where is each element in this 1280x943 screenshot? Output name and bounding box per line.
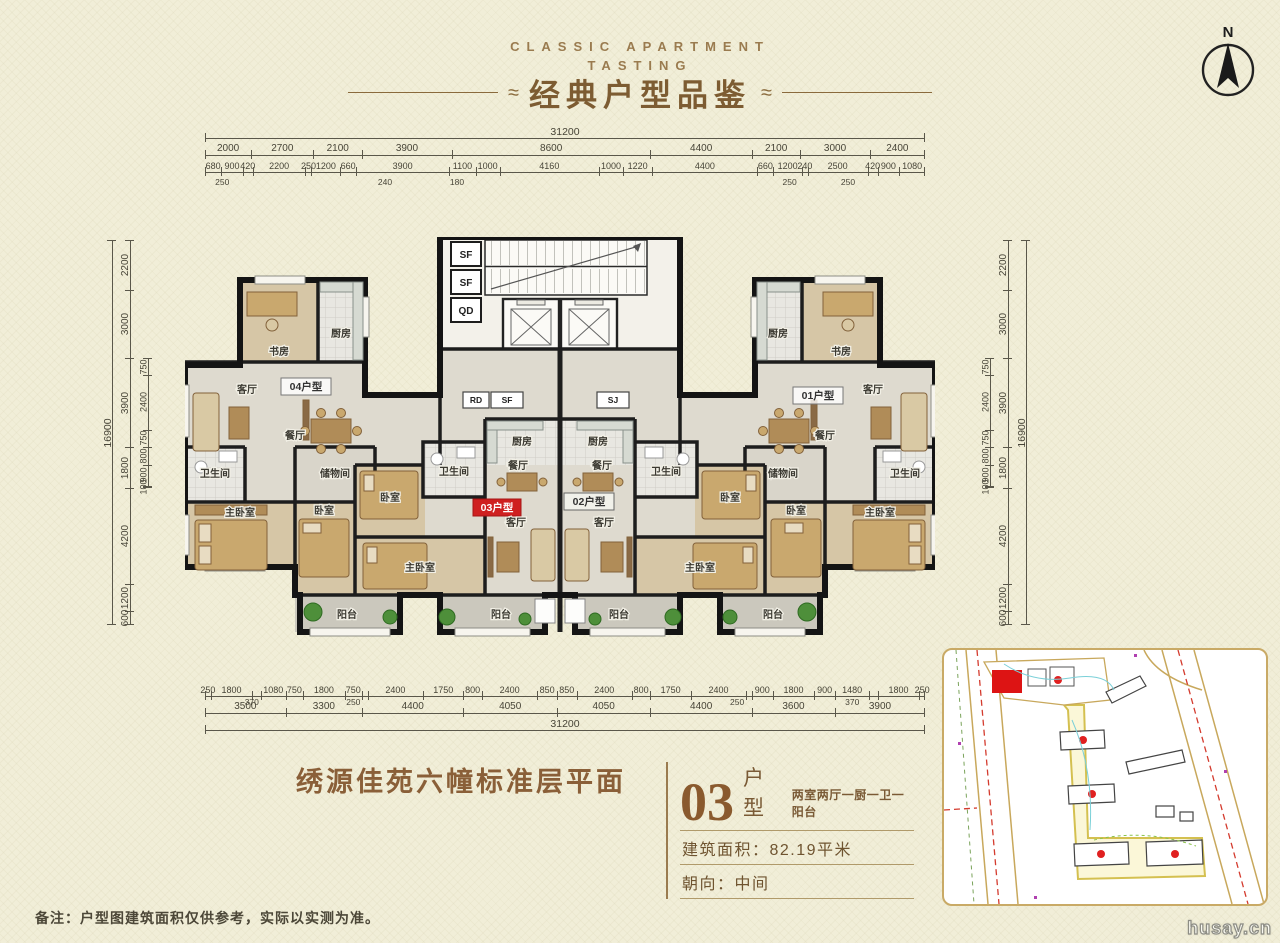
page-title-row: ≈ 经典户型品鉴 ≈ <box>0 70 1280 115</box>
room-label-kitchen: 厨房 <box>512 435 532 448</box>
north-arrow-icon <box>1217 43 1239 88</box>
dimension-segment: 660 <box>340 160 356 176</box>
dimension-segment: 4200 <box>996 488 1012 584</box>
left-dimension-inner: 7502400750800900100 <box>136 358 152 488</box>
dimension-segment: 2400 <box>978 375 994 430</box>
top-dimension-row-minor: 6809004202200250120066039001100100041601… <box>205 160 925 176</box>
room-label-bath: 卫生间 <box>439 465 469 478</box>
footer-note: 备注：户型图建筑面积仅供参考，实际以实测为准。 <box>35 908 380 928</box>
building-marker <box>1054 676 1062 684</box>
dimension-segment: 3000 <box>800 143 869 159</box>
right-dimension-main: 220030003900180042001200600 <box>996 240 1012 625</box>
dimension-segment: 2100 <box>313 143 361 159</box>
dimension-segment: 2400 <box>136 375 152 430</box>
room-label-kitchen: 厨房 <box>331 327 351 340</box>
north-label: N <box>1223 24 1234 41</box>
dimension-segment: 800 <box>136 447 152 465</box>
dimension-segment: 680 <box>205 160 221 176</box>
dimension-offset: 250 <box>730 697 744 707</box>
unit-info-block: 03 户型 两室两厅一厨一卫一阳台 建筑面积：82.19平米 朝向：中间 <box>666 762 914 899</box>
dimension-segment: 100 <box>978 486 994 488</box>
building-outline <box>1050 667 1074 686</box>
north-compass: N <box>1190 22 1266 100</box>
english-subtitle-line1: CLASSIC APARTMENT <box>0 38 1280 57</box>
dimension-segment: 750 <box>978 430 994 447</box>
elevator-shafts <box>503 299 617 349</box>
shaft-label-sf2: SF <box>460 278 473 289</box>
room-label-balcony: 阳台 <box>763 608 783 621</box>
dimension-segment: 800 <box>978 447 994 465</box>
dimension-segment: 900 <box>878 160 900 176</box>
dimension-segment: 3900 <box>996 358 1012 447</box>
dimension-segment: 2200 <box>253 160 306 176</box>
page-title: 经典户型品鉴 <box>529 70 751 115</box>
left-dimension-main: 220030003900180042001200600 <box>118 240 134 625</box>
unit-tag-01: 01户型 <box>802 389 835 402</box>
room-label-kitchen: 厨房 <box>588 435 608 448</box>
title-rule-left <box>348 92 498 93</box>
room-label-living: 客厅 <box>236 383 257 396</box>
dimension-offset: 370 <box>845 697 859 707</box>
room-label-bath: 卫生间 <box>651 465 681 478</box>
room-label-bath: 卫生间 <box>200 467 230 480</box>
dimension-segment: 3900 <box>118 358 134 447</box>
dimension-segment: 3000 <box>118 290 134 358</box>
room-label-master: 主卧室 <box>865 506 895 519</box>
unit-orientation-line: 朝向：中间 <box>680 865 914 898</box>
dimension-segment: 2100 <box>752 143 800 159</box>
room-label-storage: 储物间 <box>767 467 798 480</box>
dimension-segment: 600 <box>996 611 1012 625</box>
dimension-segment: 2500 <box>808 160 868 176</box>
dimension-segment: 1000 <box>476 160 500 176</box>
dimension-segment: 1000 <box>599 160 623 176</box>
dimension-segment: 4400 <box>650 143 752 159</box>
dimension-segment: 660 <box>757 160 773 176</box>
unit-info-headline: 03 户型 两室两厅一厨一卫一阳台 <box>680 762 914 830</box>
dimension-segment: 2200 <box>118 240 134 290</box>
unit-number-word: 户型 <box>743 762 786 822</box>
dimension-segment: 1800 <box>118 447 134 488</box>
duct-label-sj: SJ <box>608 395 619 405</box>
top-dimension-row-major: 200027002100390086004400210030002400 <box>205 143 925 159</box>
room-label-bedroom: 卧室 <box>720 491 740 504</box>
top-dimension-total: 31200 <box>205 126 925 142</box>
dimension-segment: 3000 <box>996 290 1012 358</box>
dimension-segment: 3900 <box>356 160 449 176</box>
ornament-right-icon: ≈ <box>761 83 772 103</box>
dimension-offset: 250 <box>346 697 360 707</box>
bottom-dimension-offsets: 370 250 250 370 <box>205 697 925 709</box>
floor-plan-drawing: SF SF QD <box>185 237 935 637</box>
service-shafts: SF SF QD <box>451 242 481 322</box>
unit-tag-02: 02户型 <box>573 495 606 508</box>
dimension-segment: 2200 <box>996 240 1012 290</box>
dimension-segment: 16900 <box>1014 240 1030 625</box>
dimension-offset: 370 <box>245 697 259 707</box>
right-dimension-inner: 7502400750800900100 <box>978 358 994 488</box>
room-label-bedroom: 卧室 <box>314 504 334 517</box>
highlighted-building <box>992 670 1022 693</box>
dimension-segment: 4400 <box>652 160 757 176</box>
room-label-dining: 餐厅 <box>591 459 612 472</box>
project-title: 绣源佳苑六幢标准层平面 <box>296 760 626 799</box>
shaft-label-sf1: SF <box>460 250 473 261</box>
dimension-segment: 2000 <box>205 143 251 159</box>
dimension-segment: 8600 <box>452 143 650 159</box>
room-label-master: 主卧室 <box>685 561 715 574</box>
dimension-segment: 2400 <box>870 143 925 159</box>
room-label-balcony: 阳台 <box>609 608 629 621</box>
room-label-balcony: 阳台 <box>337 608 357 621</box>
room-label-bath: 卫生间 <box>890 467 920 480</box>
ornament-left-icon: ≈ <box>508 83 519 103</box>
dimension-segment: 1080 <box>899 160 925 176</box>
stair-core <box>485 240 647 295</box>
dimension-segment: 31200 <box>205 718 925 734</box>
dimension-segment: 31200 <box>205 126 925 142</box>
dimension-segment: 16900 <box>100 240 116 625</box>
dimension-offset: 250 <box>841 177 855 187</box>
dimension-segment: 1220 <box>623 160 652 176</box>
room-label-balcony: 阳台 <box>491 608 511 621</box>
unit-tag-03-highlighted: 03户型 <box>481 501 514 514</box>
title-rule-right <box>782 92 932 93</box>
room-label-living: 客厅 <box>862 383 883 396</box>
room-label-dining: 餐厅 <box>814 429 835 442</box>
dimension-segment: 750 <box>136 358 152 375</box>
right-dimension-total: 16900 <box>1014 240 1030 625</box>
watermark: husay.cn <box>1187 918 1272 939</box>
bottom-dimension-total: 31200 <box>205 718 925 734</box>
room-label-dining: 餐厅 <box>507 459 528 472</box>
dimension-segment: 4160 <box>500 160 600 176</box>
dimension-segment: 3900 <box>362 143 452 159</box>
duct-label-rd: RD <box>470 395 482 405</box>
info-divider <box>680 898 914 899</box>
dimension-segment: 2700 <box>251 143 313 159</box>
dimension-offset: 240 <box>378 177 392 187</box>
dimension-segment: 1200 <box>996 584 1012 611</box>
room-label-master: 主卧室 <box>405 561 435 574</box>
room-label-master: 主卧室 <box>225 506 255 519</box>
left-dimension-total: 16900 <box>100 240 116 625</box>
dimension-segment: 4200 <box>118 488 134 584</box>
room-label-dining: 餐厅 <box>284 429 305 442</box>
shaft-label-qd: QD <box>459 306 474 317</box>
greenbelt-line <box>956 650 974 904</box>
unit-area-line: 建筑面积：82.19平米 <box>680 831 914 864</box>
dimension-segment: 1100 <box>449 160 475 176</box>
top-dimension-offsets: 250 240 180 250 250 <box>205 177 925 189</box>
room-label-kitchen: 厨房 <box>768 327 788 340</box>
unit-description: 两室两厅一厨一卫一阳台 <box>792 786 914 820</box>
dimension-segment: 420 <box>243 160 253 176</box>
dimension-segment: 420 <box>868 160 878 176</box>
duct-label-sf: SF <box>502 395 513 405</box>
room-label-living: 客厅 <box>593 516 614 529</box>
room-label-storage: 储物间 <box>319 467 350 480</box>
dimension-segment: 750 <box>136 430 152 447</box>
dimension-offset: 250 <box>783 177 797 187</box>
room-label-bedroom: 卧室 <box>786 504 806 517</box>
dimension-offset: 180 <box>450 177 464 187</box>
room-label-study: 书房 <box>269 345 289 358</box>
site-plan-drawing <box>944 650 1266 904</box>
dimension-segment: 1200 <box>118 584 134 611</box>
dimension-segment: 600 <box>118 611 134 625</box>
floor-plan-page: { "header": { "eyebrow_line1": "CLASSIC … <box>0 0 1280 943</box>
dimension-segment: 1800 <box>996 447 1012 488</box>
site-plan-thumbnail <box>942 648 1268 906</box>
room-label-study: 书房 <box>831 345 851 358</box>
dimension-offset: 250 <box>215 177 229 187</box>
unit-number: 03 <box>680 780 734 826</box>
dimension-segment: 1200 <box>311 160 340 176</box>
unit-tag-04: 04户型 <box>290 380 323 393</box>
room-label-bedroom: 卧室 <box>380 491 400 504</box>
dimension-segment: 750 <box>978 358 994 375</box>
dimension-segment: 100 <box>136 486 152 488</box>
room-label-living: 客厅 <box>505 516 526 529</box>
